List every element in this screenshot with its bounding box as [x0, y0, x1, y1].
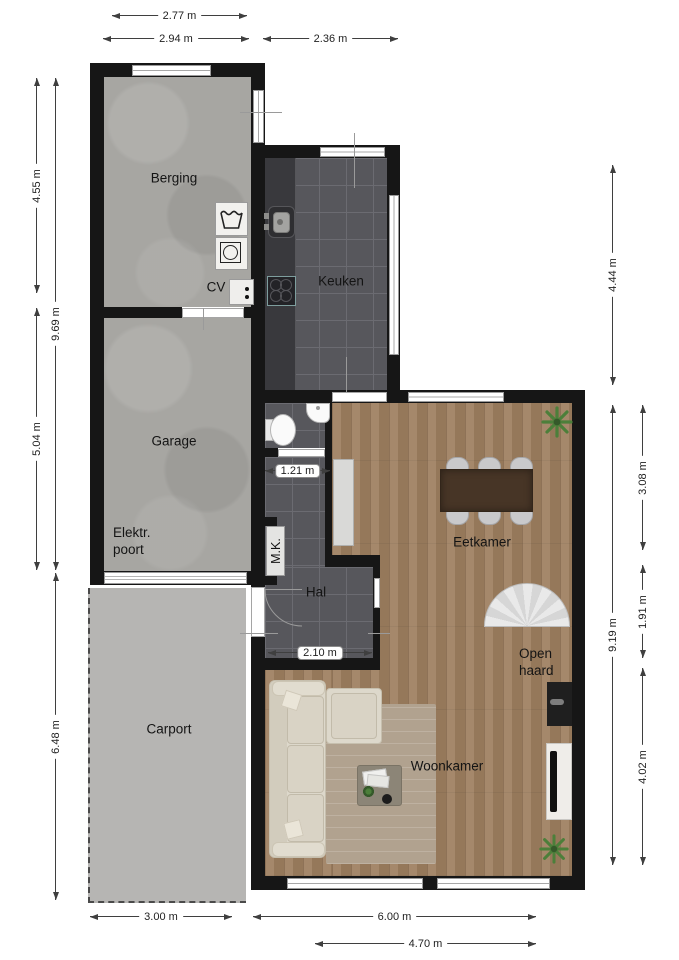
dimension-label: 6.00 m [373, 911, 417, 923]
window [253, 90, 264, 143]
bowl [382, 794, 392, 804]
reference-line [354, 133, 355, 188]
room-label-berging: Berging [151, 171, 198, 186]
cv-boiler [229, 279, 254, 305]
dimension-label: 3.00 m [139, 911, 183, 923]
door-keuken-eetkamer [332, 392, 387, 402]
room-label-eetkamer: Eetkamer [453, 535, 511, 550]
washing-machine-icon [215, 237, 248, 270]
dimension-right-3: 3.08 m [642, 405, 643, 550]
dimension-right-1: 4.44 m [612, 165, 613, 385]
room-label-woonkamer: Woonkamer [411, 759, 484, 774]
dimension-label: 4.44 m [607, 253, 619, 297]
room-label-hal: Hal [306, 585, 326, 600]
dimension-label: 4.70 m [404, 938, 448, 950]
window [132, 65, 211, 76]
dimension-right-4: 1.91 m [642, 565, 643, 658]
dimension-label: 2.10 m [297, 646, 343, 660]
dimension-label: 4.55 m [31, 164, 43, 208]
floor-plan: Berging Keuken Garage Elektr. poort Carp… [0, 0, 679, 960]
wall-segment [325, 555, 380, 567]
door-leaf-line [203, 308, 204, 330]
reference-line [240, 112, 282, 113]
dining-table [440, 469, 533, 512]
dimension-top-3: 2.36 m [263, 38, 398, 39]
window [287, 878, 423, 889]
door-swing-arc [265, 589, 303, 627]
dimension-label: 2.94 m [154, 33, 198, 45]
dimension-bottom-1: 3.00 m [90, 916, 232, 917]
dimension-label: 1.21 m [275, 464, 321, 478]
room-label-garage: Garage [151, 434, 196, 449]
wall-segment [251, 63, 265, 890]
window [389, 195, 399, 355]
label-elektr-line1: Elektr. [113, 524, 151, 541]
dimension-top-2: 2.94 m [103, 38, 249, 39]
dimension-label: 9.69 m [50, 302, 62, 346]
room-label-keuken: Keuken [318, 274, 364, 289]
dimension-label: 3.08 m [637, 456, 649, 500]
coffee-table [357, 765, 402, 806]
dimension-label: 2.36 m [309, 33, 353, 45]
dimension-inner-2: 2.10 m [268, 652, 372, 653]
label-elektr-poort: Elektr. poort [113, 524, 151, 558]
reference-line [240, 633, 278, 634]
plant-icon [540, 405, 574, 439]
dimension-label: 4.02 m [637, 745, 649, 789]
dimension-right-2: 9.19 m [612, 405, 613, 865]
dimension-left-4: 6.48 m [55, 573, 56, 900]
dimension-inner-1: 1.21 m [265, 470, 330, 471]
faucet-icon [264, 224, 269, 230]
dimension-label: 9.19 m [607, 613, 619, 657]
sofa [269, 680, 326, 858]
sofa-chaise [326, 688, 382, 744]
cooktop [267, 276, 296, 306]
plant-icon [538, 833, 570, 865]
window [408, 392, 504, 402]
tv-screen [550, 751, 557, 812]
sideboard [333, 459, 354, 546]
wall-segment [90, 63, 104, 585]
toilet [270, 414, 296, 446]
fireplace [547, 682, 572, 726]
garage-door [104, 572, 247, 584]
wall-segment [90, 307, 182, 318]
wall-segment [265, 448, 278, 457]
label-openhaard-line1: Open [519, 645, 554, 662]
label-mk: M.K. [269, 538, 283, 564]
faucet-icon [264, 213, 269, 219]
room-label-carport: Carport [146, 722, 191, 737]
kitchen-sink [268, 206, 295, 238]
label-openhaard-line2: haard [519, 662, 554, 679]
reference-line [368, 633, 390, 634]
label-cv: CV [207, 280, 226, 295]
window [437, 878, 550, 889]
wall-segment [325, 403, 332, 560]
dimension-top-1: 2.77 m [112, 15, 247, 16]
wall-segment [572, 390, 585, 890]
laundry-wash-tub-icon [215, 202, 248, 236]
dimension-left-3: 5.04 m [36, 308, 37, 570]
wall-segment [265, 517, 277, 526]
plant-icon [363, 786, 374, 797]
front-door [251, 587, 265, 637]
dimension-label: 2.77 m [158, 10, 202, 22]
label-elektr-line2: poort [113, 541, 151, 558]
door-hal-woonkamer [374, 578, 380, 608]
dimension-left-1: 4.55 m [36, 78, 37, 293]
dimension-left-2: 9.69 m [55, 78, 56, 570]
dimension-bottom-3: 4.70 m [315, 943, 536, 944]
dimension-bottom-2: 6.00 m [253, 916, 536, 917]
room-carport-floor [88, 588, 246, 903]
door-berging-garage [182, 308, 244, 318]
dimension-label: 6.48 m [50, 715, 62, 759]
label-open-haard: Open haard [519, 645, 554, 679]
room-berging-floor [104, 77, 251, 307]
door-toilet [278, 449, 325, 457]
wall-segment [244, 307, 265, 318]
dimension-right-5: 4.02 m [642, 668, 643, 865]
kitchen-counter [265, 158, 296, 390]
window [320, 147, 385, 157]
tv-stand [546, 743, 572, 820]
door-leaf-line [346, 357, 347, 392]
dimension-label: 1.91 m [637, 590, 649, 634]
dimension-label: 5.04 m [31, 417, 43, 461]
wall-segment [265, 576, 277, 585]
